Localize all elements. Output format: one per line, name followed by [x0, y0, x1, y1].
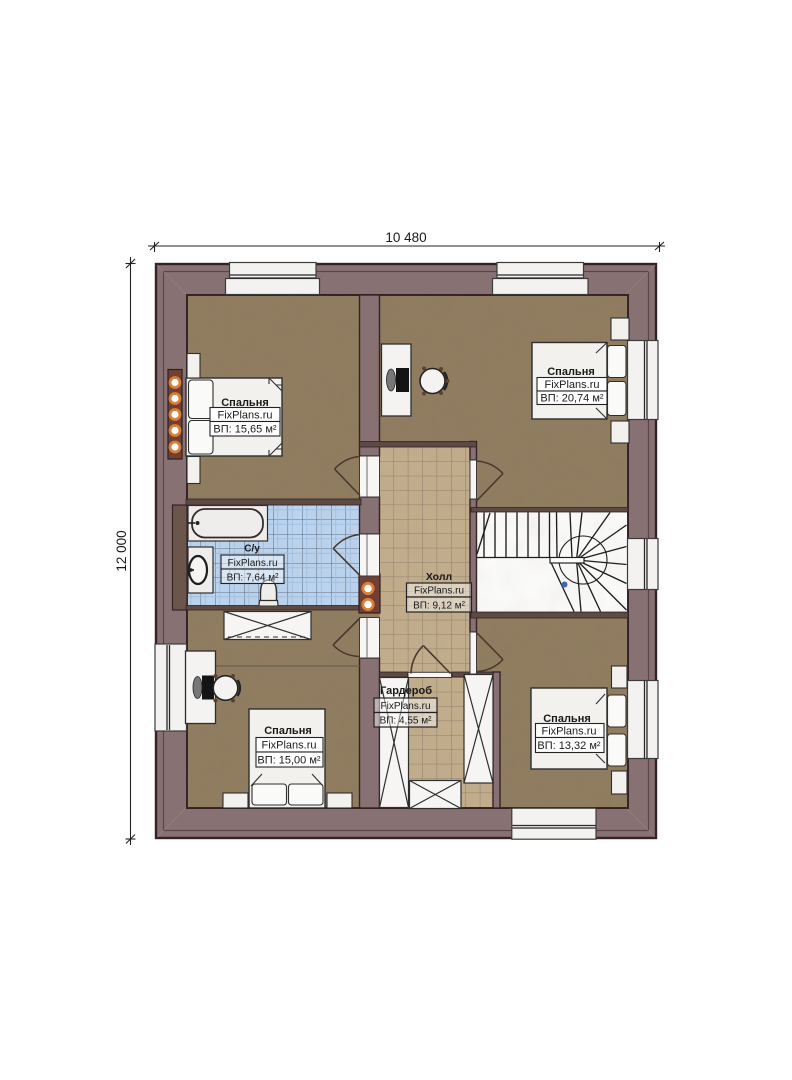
- svg-text:FixPlans.ru: FixPlans.ru: [261, 740, 316, 752]
- svg-text:Спальня: Спальня: [547, 366, 595, 378]
- svg-text:FixPlans.ru: FixPlans.ru: [544, 379, 599, 391]
- svg-text:FixPlans.ru: FixPlans.ru: [541, 726, 596, 738]
- svg-text:ВП: 15,00 м²: ВП: 15,00 м²: [257, 755, 321, 767]
- svg-text:FixPlans.ru: FixPlans.ru: [217, 410, 272, 422]
- svg-text:ВП: 15,65 м²: ВП: 15,65 м²: [213, 424, 277, 436]
- svg-text:Холл: Холл: [426, 571, 452, 583]
- svg-text:ВП: 7,64 м²: ВП: 7,64 м²: [227, 573, 280, 584]
- svg-text:Спальня: Спальня: [264, 725, 312, 737]
- svg-text:10 480: 10 480: [385, 230, 426, 245]
- svg-text:ВП: 13,32 м²: ВП: 13,32 м²: [537, 740, 601, 752]
- svg-text:С/у: С/у: [244, 544, 260, 555]
- svg-text:ВП: 9,12 м²: ВП: 9,12 м²: [413, 601, 466, 612]
- svg-text:ВП: 4,55 м²: ВП: 4,55 м²: [380, 716, 433, 727]
- svg-text:Гардероб: Гардероб: [380, 685, 432, 697]
- svg-text:12 000: 12 000: [114, 530, 129, 571]
- svg-text:ВП: 20,74 м²: ВП: 20,74 м²: [540, 393, 604, 405]
- svg-text:FixPlans.ru: FixPlans.ru: [414, 586, 464, 597]
- svg-text:FixPlans.ru: FixPlans.ru: [227, 558, 277, 569]
- svg-text:FixPlans.ru: FixPlans.ru: [380, 701, 430, 712]
